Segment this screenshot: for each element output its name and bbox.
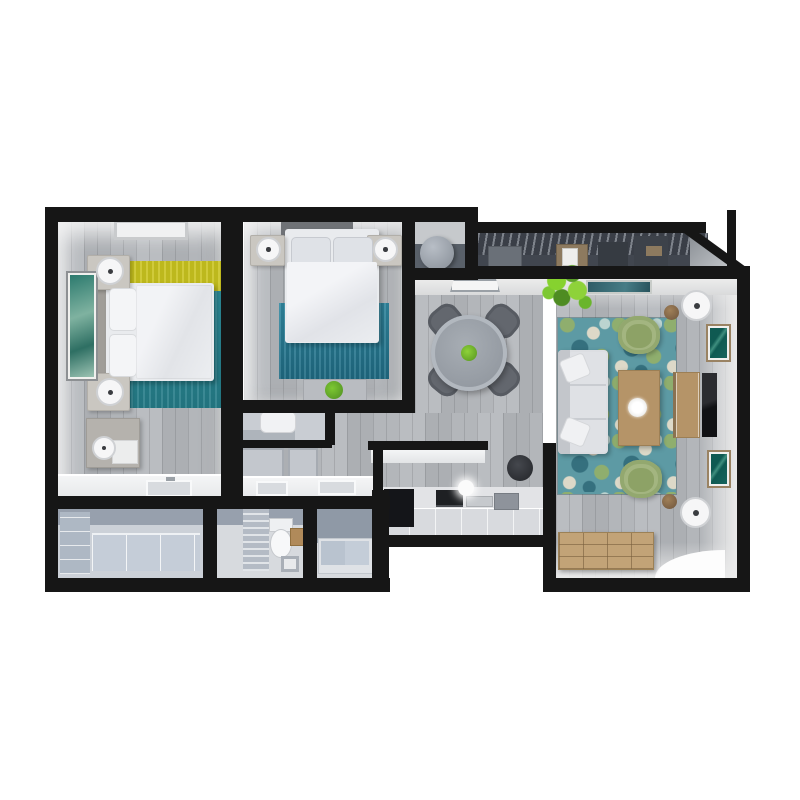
wall-living-left <box>543 443 556 583</box>
hall-wall-frame-2 <box>288 448 318 478</box>
wall-right-stub <box>727 210 736 272</box>
wall-master-right <box>221 207 243 503</box>
wall-closet-bottom <box>402 268 478 280</box>
storage-unit-main <box>92 533 200 571</box>
bedroom2-lamp-left <box>256 237 281 262</box>
balcony-wood-box <box>646 246 662 256</box>
master-lamp-top <box>96 257 124 285</box>
bathtub-basin <box>321 541 369 565</box>
skylight <box>114 220 188 240</box>
floorplan <box>0 0 800 800</box>
accent-chair-bottom <box>620 460 662 498</box>
bedroom2-plant <box>325 381 343 399</box>
kitchen-island-counter <box>371 450 485 463</box>
hall-sink-2 <box>318 480 356 495</box>
kitchen-black-stool <box>507 455 533 481</box>
shower-partition <box>243 507 269 571</box>
master-duvet <box>136 285 212 379</box>
wall-left-outer <box>45 207 58 592</box>
master-lamp-bottom <box>96 378 124 406</box>
coffee-table-centerpiece <box>628 398 647 417</box>
tv-screen <box>702 373 717 437</box>
wall-living-top <box>478 266 750 279</box>
wall-bedroom2-bottom <box>232 400 415 413</box>
floor-lamp-bottom <box>680 497 711 528</box>
sideboard-slatted <box>558 532 654 570</box>
wall-kitchen-island-rim <box>368 441 488 450</box>
dresser-towels <box>112 440 138 464</box>
master-vanity-sink <box>146 480 192 497</box>
kitchen-tray <box>466 496 493 507</box>
wall-balcony-top <box>478 222 706 233</box>
dining-table-plant <box>461 345 477 361</box>
wall-living-bottom <box>543 578 750 592</box>
master-pillow-top <box>109 288 137 331</box>
entry-door-mat <box>450 279 500 292</box>
master-wall-art <box>66 271 98 381</box>
tv-console <box>673 372 700 438</box>
wall-bedroom2-right <box>402 207 415 413</box>
toilet-bowl <box>270 529 292 558</box>
wall-bath-bottom <box>45 578 390 592</box>
wall-kitchen-bottom <box>373 535 553 547</box>
hall-wall-frame-1 <box>240 448 284 478</box>
water-heater <box>420 236 454 270</box>
dresser-lamp <box>92 436 116 460</box>
toilet-sink-basin <box>284 559 296 569</box>
living-art-top <box>706 324 731 362</box>
storage-cabinet-left <box>60 512 90 574</box>
master-vanity-faucet <box>166 477 175 481</box>
lamp-stool-bottom <box>662 494 677 509</box>
bedroom2-lamp-right <box>373 237 398 262</box>
master-pillow-bottom <box>109 334 137 377</box>
bedroom2-duvet <box>287 262 377 342</box>
living-art-bottom <box>707 450 731 488</box>
washer-unit <box>260 411 296 433</box>
wall-bath-right <box>372 490 389 592</box>
floor-lamp-top <box>681 290 712 321</box>
accent-chair-top <box>618 316 660 354</box>
living-window-glass <box>586 280 652 294</box>
kitchen-appliance-gray <box>494 493 519 510</box>
wall-niche-bottom <box>232 440 332 448</box>
kitchen-pendant-sphere <box>458 480 474 496</box>
wall-living-right <box>737 266 750 592</box>
hall-sink-1 <box>256 481 288 496</box>
lamp-stool-top <box>664 305 679 320</box>
wall-bath-top <box>45 496 390 509</box>
